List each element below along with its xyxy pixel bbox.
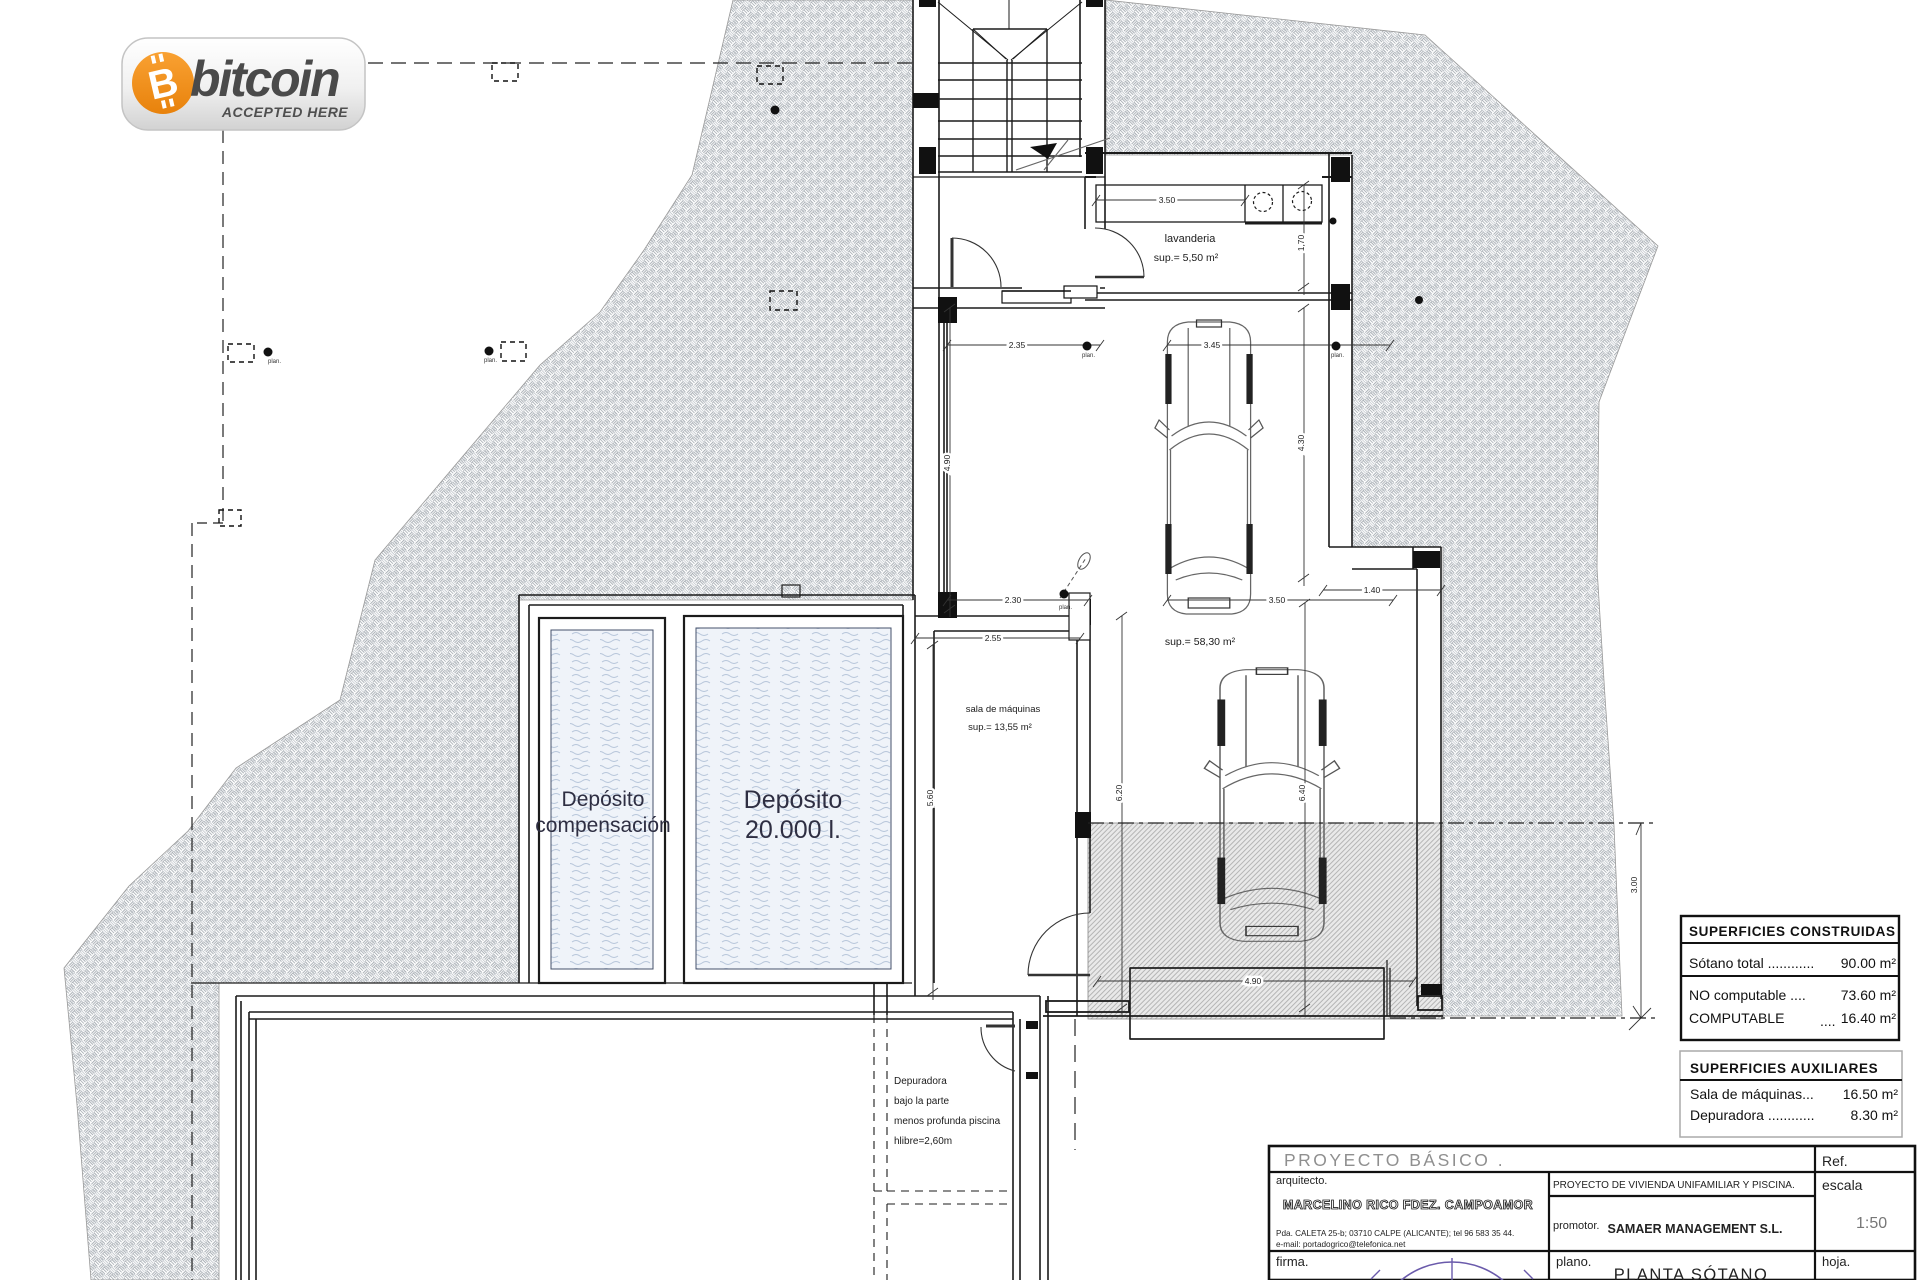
- svg-text:6.40: 6.40: [1297, 784, 1307, 801]
- svg-text:sup.= 58,30 m²: sup.= 58,30 m²: [1165, 636, 1236, 648]
- svg-text:hlibre=2,60m: hlibre=2,60m: [894, 1136, 952, 1147]
- svg-text:escala: escala: [1822, 1177, 1863, 1193]
- svg-text:2.35: 2.35: [1009, 340, 1026, 350]
- svg-text:PROYECTO BÁSICO .: PROYECTO BÁSICO .: [1284, 1150, 1505, 1170]
- svg-text:COMPUTABLE: COMPUTABLE: [1689, 1010, 1784, 1026]
- svg-text:2.30: 2.30: [1005, 595, 1022, 605]
- svg-text:3.00: 3.00: [1629, 876, 1639, 893]
- svg-text:plan.: plan.: [484, 358, 497, 364]
- svg-text:16.50 m²: 16.50 m²: [1843, 1086, 1899, 1102]
- svg-text:arquitecto.: arquitecto.: [1276, 1175, 1327, 1187]
- svg-text:NO computable ....: NO computable ....: [1689, 987, 1806, 1003]
- svg-text:3.50: 3.50: [1159, 195, 1176, 205]
- svg-text:SAMAER MANAGEMENT S.L.: SAMAER MANAGEMENT S.L.: [1608, 1222, 1783, 1236]
- svg-text:73.60 m²: 73.60 m²: [1841, 987, 1897, 1003]
- svg-text:PROYECTO DE VIVIENDA UNIFAMILI: PROYECTO DE VIVIENDA UNIFAMILIAR Y PISCI…: [1553, 1180, 1795, 1191]
- svg-text:16.40 m²: 16.40 m²: [1841, 1010, 1897, 1026]
- svg-text:5.60: 5.60: [925, 789, 935, 806]
- svg-text:PLANTA SÓTANO: PLANTA SÓTANO: [1614, 1265, 1769, 1280]
- svg-text:1,70: 1,70: [1296, 234, 1306, 251]
- svg-text:1:50: 1:50: [1856, 1215, 1887, 1232]
- svg-text:3.50: 3.50: [1269, 595, 1286, 605]
- svg-text:Depuradora ............: Depuradora ............: [1690, 1107, 1815, 1123]
- svg-text:SUPERFICIES AUXILIARES: SUPERFICIES AUXILIARES: [1690, 1061, 1878, 1076]
- svg-text:....: ....: [1820, 1013, 1836, 1029]
- svg-text:Pda. CALETA 25-b; 03710 CALPE: Pda. CALETA 25-b; 03710 CALPE (ALICANTE)…: [1276, 1229, 1514, 1238]
- svg-text:2.55: 2.55: [985, 633, 1002, 643]
- svg-text:sup.= 5,50 m²: sup.= 5,50 m²: [1154, 252, 1219, 264]
- svg-text:compensación: compensación: [535, 814, 670, 837]
- svg-text:sup.= 13,55 m²: sup.= 13,55 m²: [968, 722, 1032, 733]
- svg-text:Depósito: Depósito: [562, 788, 645, 811]
- svg-text:SUPERFICIES CONSTRUIDAS: SUPERFICIES CONSTRUIDAS: [1689, 924, 1896, 939]
- svg-text:MARCELINO RICO FDEZ. CAMPOAMOR: MARCELINO RICO FDEZ. CAMPOAMOR: [1283, 1198, 1533, 1212]
- svg-text:plano.: plano.: [1556, 1254, 1591, 1269]
- svg-text:6.20: 6.20: [1114, 784, 1124, 801]
- svg-text:Sala de máquinas...: Sala de máquinas...: [1690, 1086, 1814, 1102]
- svg-text:Depuradora: Depuradora: [894, 1076, 947, 1087]
- svg-text:plan.: plan.: [268, 359, 281, 365]
- svg-text:1.40: 1.40: [1364, 585, 1381, 595]
- svg-text:hoja.: hoja.: [1822, 1254, 1850, 1269]
- svg-text:90.00 m²: 90.00 m²: [1841, 955, 1897, 971]
- svg-text:8.30 m²: 8.30 m²: [1851, 1107, 1899, 1123]
- svg-text:Ref.: Ref.: [1822, 1153, 1848, 1169]
- svg-text:Depósito: Depósito: [744, 786, 843, 814]
- svg-text:4.30: 4.30: [1296, 434, 1306, 451]
- svg-text:4.90: 4.90: [1245, 976, 1262, 986]
- svg-text:Sótano total ............: Sótano total ............: [1689, 955, 1814, 971]
- svg-text:sala de máquinas: sala de máquinas: [966, 704, 1041, 715]
- svg-text:e-mail: portadogrico@telefonic: e-mail: portadogrico@telefonica.net: [1276, 1240, 1406, 1249]
- svg-text:firma.: firma.: [1276, 1254, 1309, 1269]
- svg-text:4.90: 4.90: [942, 454, 952, 471]
- svg-text:plan.: plan.: [1059, 605, 1072, 611]
- svg-text:promotor.: promotor.: [1553, 1220, 1599, 1232]
- svg-text:bitcoin: bitcoin: [190, 51, 339, 107]
- svg-text:bajo la parte: bajo la parte: [894, 1096, 949, 1107]
- svg-text:20.000 l.: 20.000 l.: [745, 816, 841, 844]
- svg-text:menos profunda piscina: menos profunda piscina: [894, 1116, 1001, 1127]
- svg-text:plan.: plan.: [1331, 353, 1344, 359]
- svg-text:plan.: plan.: [1082, 353, 1095, 359]
- svg-text:lavanderia: lavanderia: [1165, 233, 1217, 245]
- svg-text:3.45: 3.45: [1204, 340, 1221, 350]
- svg-text:ACCEPTED HERE: ACCEPTED HERE: [221, 104, 348, 120]
